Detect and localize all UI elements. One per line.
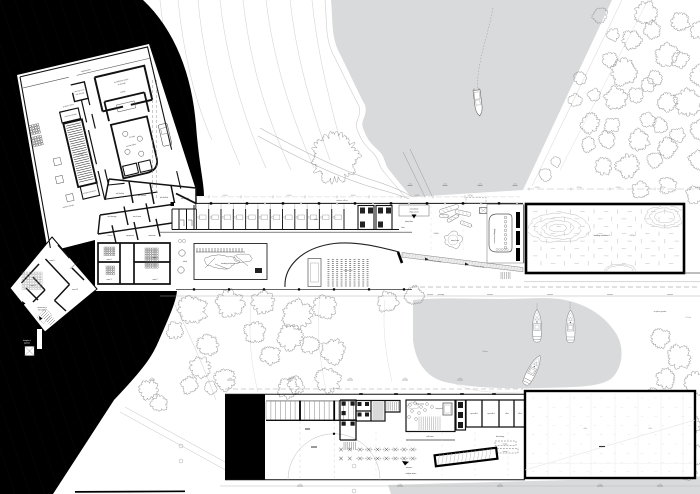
svg-text:sculpture garden: sculpture garden (654, 310, 667, 313)
svg-text:room 10: room 10 (72, 288, 78, 291)
svg-text:alcove: alcove (108, 235, 113, 237)
svg-text:soft facilitie: soft facilitie (138, 194, 146, 197)
svg-text:+17.5a: +17.5a (577, 187, 582, 189)
svg-text:+10a: +10a (298, 484, 302, 486)
svg-text:room 5: room 5 (30, 284, 35, 287)
svg-text:office: office (314, 219, 319, 221)
svg-text:+17a: +17a (408, 184, 412, 186)
svg-text:+17.5a: +17.5a (287, 195, 292, 197)
svg-text:+17.5a: +17.5a (535, 187, 540, 189)
svg-text:+17.5a: +17.5a (223, 195, 228, 197)
svg-text:room 2: room 2 (152, 278, 157, 281)
svg-text:+17.5a: +17.5a (351, 195, 356, 197)
svg-text:+17a: +17a (478, 184, 482, 186)
svg-text:+15a: +15a (403, 378, 407, 380)
svg-text:+10.0a: +10.0a (434, 233, 439, 235)
svg-text:+17a: +17a (648, 428, 652, 430)
svg-text:+10 lau: +10 lau (482, 351, 487, 353)
svg-text:museum pedagogy: museum pedagogy (494, 229, 496, 244)
svg-text:+17.5a: +17.5a (415, 195, 420, 197)
svg-text:mat storage: mat storage (108, 215, 117, 218)
svg-text:plaza floor: plaza floor (405, 220, 413, 223)
svg-text:office: office (505, 413, 509, 415)
svg-text:equipment: equipment (126, 234, 134, 237)
svg-text:passage: passage (438, 294, 444, 296)
svg-text:outdoor space: outdoor space (406, 472, 417, 475)
svg-text:building exhibition 1: building exhibition 1 (594, 234, 611, 237)
svg-text:+10a: +10a (658, 484, 662, 486)
svg-text:room 6: room 6 (49, 259, 54, 262)
svg-text:+15a: +15a (288, 378, 292, 380)
svg-text:+10a: +10a (498, 484, 502, 486)
svg-text:soft facilitie: soft facilitie (116, 192, 124, 195)
svg-text:open office: open office (470, 413, 477, 415)
svg-text:room 1: room 1 (152, 256, 157, 259)
svg-text:room 4: room 4 (106, 258, 111, 261)
svg-text:+15a: +15a (150, 378, 154, 380)
svg-text:+7.5 aa: +7.5 aa (685, 317, 690, 319)
svg-text:open office: open office (487, 413, 494, 415)
svg-text:concert sal: concert sal (344, 269, 353, 272)
svg-text:mixed cafe: mixed cafe (451, 240, 459, 242)
svg-text:+17.5a: +17.5a (661, 187, 666, 189)
svg-text:standing architects: standing architects (221, 262, 235, 265)
svg-text:+17a: +17a (443, 184, 447, 186)
svg-text:office: office (518, 413, 522, 415)
svg-text:living roof: living roof (436, 408, 443, 410)
svg-text:+15a: +15a (458, 378, 462, 380)
svg-text:underea offices: underea offices (336, 199, 348, 202)
svg-text:shipp comers: shipp comers (409, 212, 419, 214)
svg-text:+17a: +17a (513, 184, 517, 186)
svg-text:+17.5a: +17.5a (630, 235, 635, 237)
svg-text:boat: boat (401, 226, 405, 229)
svg-text:soft facilitie: soft facilitie (160, 196, 168, 199)
svg-text:stock room: stock room (133, 215, 142, 218)
svg-text:+17.5a: +17.5a (468, 195, 473, 197)
svg-text:+15a: +15a (348, 378, 352, 380)
svg-text:arrival boxe: arrival boxe (410, 208, 419, 211)
svg-text:+10a: +10a (398, 484, 402, 486)
svg-text:+12a: +12a (583, 428, 587, 430)
svg-text:+15a: +15a (228, 378, 232, 380)
svg-text:anteroom: anteroom (148, 234, 156, 237)
svg-text:+17.5a: +17.5a (616, 187, 621, 189)
svg-text:room 3: room 3 (106, 278, 111, 281)
svg-text:+17.5a: +17.5a (696, 187, 700, 189)
svg-text:+10a: +10a (598, 484, 602, 486)
